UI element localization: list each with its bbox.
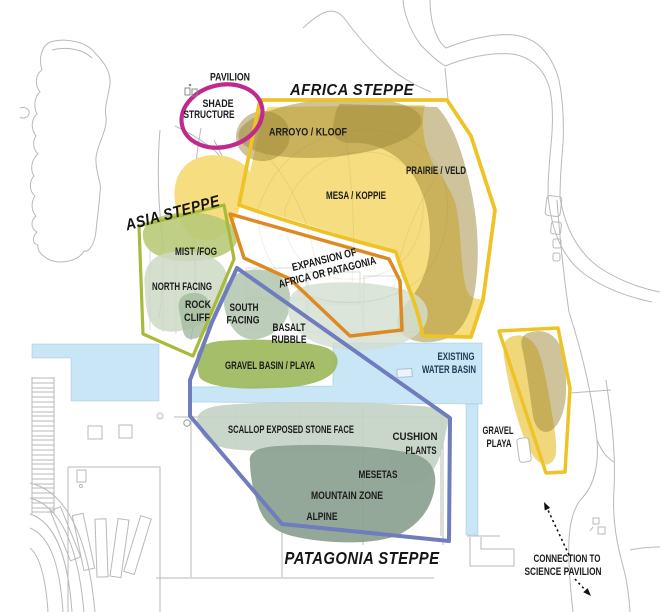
svg-text:SCIENCE PAVILION: SCIENCE PAVILION (525, 566, 602, 578)
svg-text:BASALT: BASALT (273, 322, 306, 334)
svg-text:MESETAS: MESETAS (359, 469, 398, 481)
svg-text:GRAVEL BASIN / PLAYA: GRAVEL BASIN / PLAYA (225, 360, 315, 372)
svg-text:STRUCTURE: STRUCTURE (184, 109, 235, 121)
svg-text:MIST /FOG: MIST /FOG (175, 246, 217, 258)
svg-text:CUSHION: CUSHION (393, 431, 438, 443)
svg-text:ROCK: ROCK (185, 299, 211, 311)
svg-text:NORTH FACING: NORTH FACING (152, 281, 212, 293)
svg-text:RUBBLE: RUBBLE (272, 334, 307, 346)
svg-text:PAVILION: PAVILION (210, 72, 250, 84)
svg-text:CONNECTION TO: CONNECTION TO (534, 553, 601, 565)
svg-text:FACING: FACING (227, 315, 260, 327)
svg-text:SCALLOP EXPOSED STONE FACE: SCALLOP EXPOSED STONE FACE (228, 424, 354, 436)
svg-text:PLAYA: PLAYA (487, 438, 512, 450)
svg-text:AFRICA STEPPE: AFRICA STEPPE (289, 82, 415, 99)
svg-text:ALPINE: ALPINE (307, 511, 338, 523)
svg-text:PRAIRIE / VELD: PRAIRIE / VELD (406, 165, 466, 177)
svg-text:MESA / KOPPIE: MESA / KOPPIE (326, 190, 386, 202)
svg-text:SOUTH: SOUTH (230, 302, 259, 314)
svg-text:WATER BASIN: WATER BASIN (422, 364, 476, 376)
svg-text:PATAGONIA STEPPE: PATAGONIA STEPPE (285, 548, 441, 568)
svg-text:CLIFF: CLIFF (184, 312, 210, 324)
svg-text:GRAVEL: GRAVEL (483, 425, 514, 437)
svg-text:PLANTS: PLANTS (406, 445, 437, 457)
svg-text:EXISTING: EXISTING (438, 351, 475, 363)
svg-text:MOUNTAIN ZONE: MOUNTAIN ZONE (311, 490, 383, 502)
svg-text:ARROYO / KLOOF: ARROYO / KLOOF (269, 127, 347, 139)
